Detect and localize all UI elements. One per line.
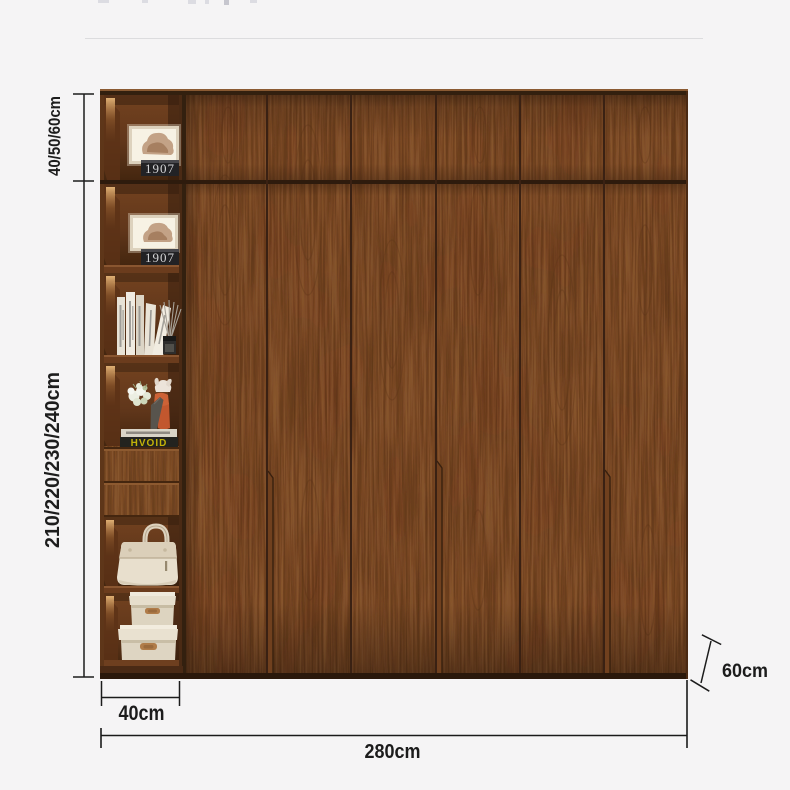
svg-text:280cm: 280cm xyxy=(365,741,421,763)
svg-text:1907: 1907 xyxy=(145,250,175,265)
svg-text:60cm: 60cm xyxy=(722,661,768,682)
svg-text:210/220/230/240cm: 210/220/230/240cm xyxy=(42,372,64,548)
svg-text:1907: 1907 xyxy=(145,161,175,176)
svg-text:40cm: 40cm xyxy=(119,702,165,725)
svg-text:40/50/60cm: 40/50/60cm xyxy=(45,96,64,176)
